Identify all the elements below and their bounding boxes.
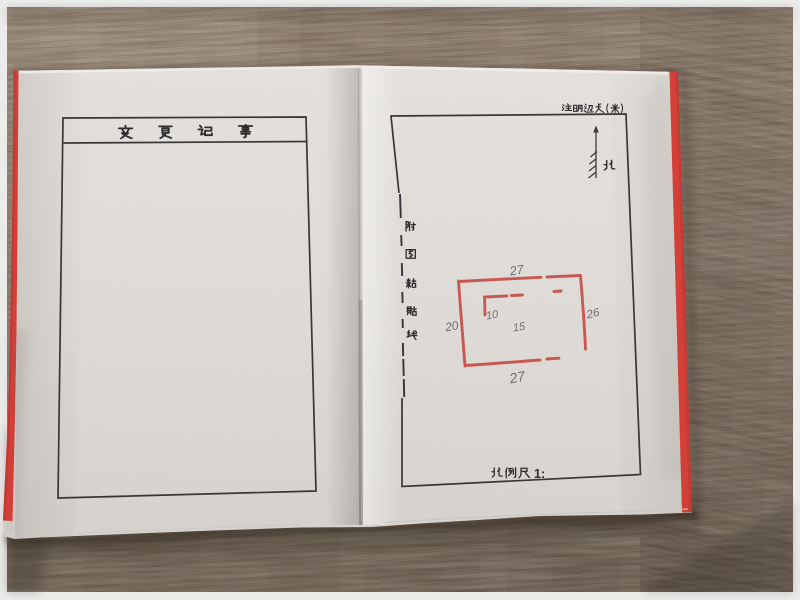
svg-text:20: 20: [443, 318, 460, 335]
svg-text:1:: 1:: [534, 467, 545, 481]
